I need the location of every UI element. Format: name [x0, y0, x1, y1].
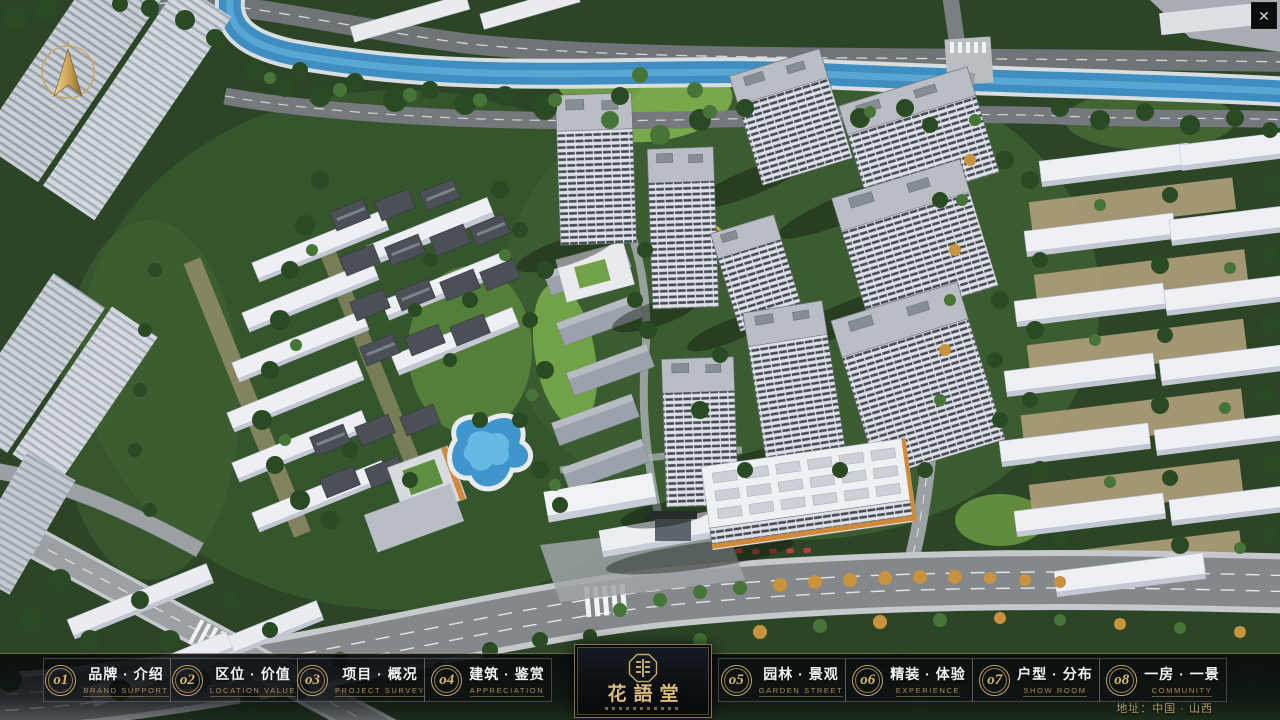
close-icon: ✕ — [1258, 9, 1270, 23]
nav-number-badge: o7 — [979, 665, 1010, 696]
logo-panel[interactable]: 花語堂 — [574, 644, 712, 718]
bottom-navbar: o1 品牌 · 介绍BRAND SUPPORT o2 区位 · 价值LOCATI… — [0, 653, 1280, 720]
nav-number-badge: o5 — [721, 665, 752, 696]
nav-subtitle: EXPERIENCE — [896, 686, 960, 697]
logo-title: 花語堂 — [600, 685, 685, 704]
close-button[interactable]: ✕ — [1251, 2, 1277, 29]
nav-number-badge: o4 — [431, 665, 462, 696]
logo-subtext-decoration — [605, 707, 681, 710]
nav-number: o3 — [305, 673, 320, 688]
aerial-masterplan-render — [0, 0, 1280, 720]
nav-number: o6 — [860, 673, 875, 688]
project-address: 地址：中国 · 山西 — [1116, 700, 1213, 716]
nav-number-badge: o6 — [852, 665, 883, 696]
nav-item-interior-experience[interactable]: o6 精装 · 体验EXPERIENCE — [845, 658, 973, 702]
nav-subtitle: LOCATION VALUE — [210, 686, 296, 697]
nav-item-brand-intro[interactable]: o1 品牌 · 介绍BRAND SUPPORT — [43, 658, 171, 702]
nav-subtitle: BRAND SUPPORT — [83, 686, 168, 697]
nav-item-floorplan-distribution[interactable]: o7 户型 · 分布SHOW ROOM — [972, 658, 1100, 702]
nav-item-room-view[interactable]: o8 一房 · 一景COMMUNITY — [1099, 658, 1227, 702]
nav-title: 户型 · 分布 — [1017, 664, 1092, 684]
sales-presentation-screen: ✕ o1 品牌 · 介绍BRAND SUPPORT o2 区位 · 价值LOCA… — [0, 0, 1280, 720]
nav-number: o7 — [987, 673, 1002, 688]
nav-subtitle: SHOW ROOM — [1023, 686, 1086, 697]
nav-number-badge: o1 — [45, 665, 76, 696]
nav-title: 项目 · 概况 — [342, 664, 417, 684]
compass-north-icon — [36, 38, 100, 102]
nav-subtitle: COMMUNITY — [1152, 686, 1213, 697]
nav-number: o8 — [1114, 673, 1129, 688]
nav-number-badge: o8 — [1106, 665, 1137, 696]
nav-number-badge: o2 — [172, 665, 203, 696]
nav-title: 一房 · 一景 — [1144, 664, 1219, 684]
nav-subtitle: APPRECIATION — [470, 686, 545, 697]
nav-number: o4 — [439, 673, 454, 688]
nav-number: o1 — [53, 673, 68, 688]
nav-item-location-value[interactable]: o2 区位 · 价值LOCATION VALUE — [170, 658, 298, 702]
nav-number: o5 — [729, 673, 744, 688]
seal-emblem-icon — [628, 653, 658, 683]
nav-number-badge: o3 — [297, 665, 328, 696]
nav-subtitle: GARDEN STREET — [759, 686, 844, 697]
nav-subtitle: PROJECT SURVEY — [335, 686, 425, 697]
nav-number: o2 — [180, 673, 195, 688]
nav-item-project-survey[interactable]: o3 项目 · 概况PROJECT SURVEY — [297, 658, 425, 702]
nav-title: 建筑 · 鉴赏 — [469, 664, 544, 684]
nav-title: 精装 · 体验 — [890, 664, 965, 684]
nav-item-architecture-appreciation[interactable]: o4 建筑 · 鉴赏APPRECIATION — [424, 658, 552, 702]
nav-title: 园林 · 景观 — [763, 664, 838, 684]
nav-title: 品牌 · 介绍 — [88, 664, 163, 684]
nav-item-garden-landscape[interactable]: o5 园林 · 景观GARDEN STREET — [718, 658, 846, 702]
nav-title: 区位 · 价值 — [215, 664, 290, 684]
